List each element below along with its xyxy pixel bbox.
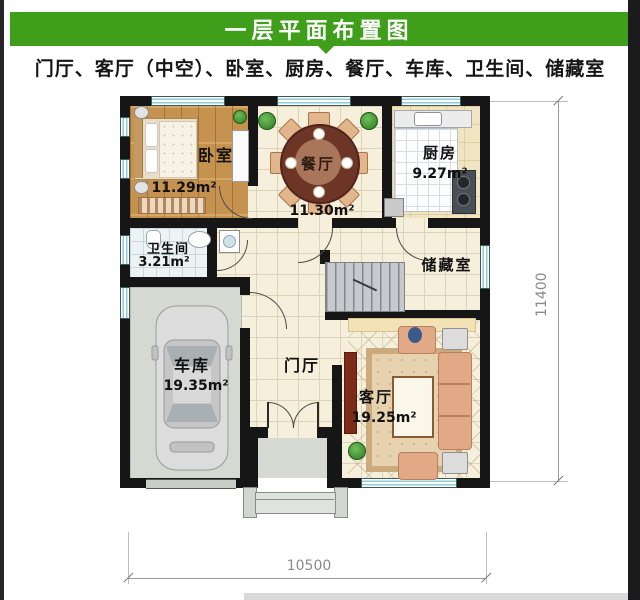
dim-width-label: 10500 xyxy=(277,558,341,574)
wall-mid-a xyxy=(130,218,298,228)
dim-height-label: 11400 xyxy=(534,255,550,335)
wall-bedroom-dining xyxy=(248,106,258,186)
window-living-bottom xyxy=(362,479,456,487)
side-table-bottom xyxy=(442,452,468,474)
bedside-lamp-1 xyxy=(134,106,149,119)
wall-recess-right xyxy=(327,438,337,488)
window-garage-left xyxy=(121,288,129,318)
photo-edge-left xyxy=(0,0,4,600)
label-foyer: 门厅 xyxy=(276,352,328,376)
area-bathroom: 3.21m² xyxy=(134,255,194,270)
label-garage: 车库 xyxy=(166,352,218,376)
header-banner: 一层平面布置图 xyxy=(10,12,628,46)
label-kitchen: 厨房 xyxy=(410,142,470,163)
porch-steps xyxy=(255,492,336,514)
kitchen-fridge xyxy=(384,198,404,217)
sofa-armchair-bottom xyxy=(398,452,438,480)
stove-burner-2 xyxy=(457,193,470,206)
window-storage-right xyxy=(481,246,489,288)
window-bedroom-left-2 xyxy=(121,160,129,178)
wall-entrance-left xyxy=(248,427,268,438)
entrance-door-leaf-right xyxy=(317,402,319,428)
kitchen-sink xyxy=(414,112,442,126)
living-plant xyxy=(348,442,366,460)
area-garage: 19.35m² xyxy=(158,378,234,394)
window-kitchen-top xyxy=(402,97,460,105)
photo-edge-bottom xyxy=(244,593,628,600)
dim-line-bottom xyxy=(128,578,486,579)
area-dining: 11.30m² xyxy=(286,203,358,219)
label-bedroom: 卧室 xyxy=(186,142,246,166)
person-on-sofa xyxy=(408,327,422,343)
sofa-cushion-line-2 xyxy=(438,415,470,417)
plate-n xyxy=(313,128,325,140)
window-bedroom-left-1 xyxy=(121,118,129,136)
label-living: 客厅 xyxy=(352,386,400,407)
side-table-top xyxy=(442,328,468,350)
garage-door xyxy=(146,479,236,489)
wall-right xyxy=(480,96,490,488)
area-kitchen: 9.27m² xyxy=(408,166,472,182)
wall-entrance-right xyxy=(317,427,337,438)
washing-machine-drum xyxy=(223,235,236,248)
wall-garage-right-a xyxy=(240,287,250,295)
wall-garage-top xyxy=(120,277,250,287)
area-living: 19.25m² xyxy=(348,410,420,426)
sofa-long xyxy=(438,352,472,450)
window-bedroom-top xyxy=(152,97,224,105)
porch-post-right xyxy=(334,487,348,518)
banner-pointer xyxy=(318,46,334,54)
dim-line-right xyxy=(558,101,559,482)
floor-plan-page: 一层平面布置图 门厅、客厅（中空）、卧室、厨房、餐厅、车库、卫生间、储藏室 xyxy=(0,0,640,600)
plate-s xyxy=(313,186,325,198)
entrance-door-leaf-left xyxy=(267,402,269,428)
room-list-subtitle: 门厅、客厅（中空）、卧室、厨房、餐厅、车库、卫生间、储藏室 xyxy=(20,54,620,81)
bedroom-rug xyxy=(138,197,206,214)
bed-pillow-1 xyxy=(145,123,158,147)
dining-plant-left xyxy=(258,112,276,130)
bed-headboard xyxy=(134,118,143,178)
bedroom-plant xyxy=(233,110,247,124)
wall-recess-left xyxy=(248,438,258,488)
label-dining: 餐厅 xyxy=(292,153,344,174)
window-bathroom-left xyxy=(121,236,129,264)
window-dining-top xyxy=(278,97,350,105)
area-bedroom: 11.29m² xyxy=(146,180,222,196)
photo-edge-right xyxy=(628,0,640,600)
porch-step-line xyxy=(255,499,334,500)
label-storage: 储藏室 xyxy=(414,254,480,275)
dining-plant-right xyxy=(360,112,378,130)
entrance-recess-floor xyxy=(258,438,327,478)
stairs xyxy=(325,262,405,312)
sofa-cushion-line-1 xyxy=(438,383,470,385)
page-title: 一层平面布置图 xyxy=(224,13,413,45)
bed-pillow-2 xyxy=(145,149,158,173)
wall-mid-c xyxy=(428,218,480,228)
